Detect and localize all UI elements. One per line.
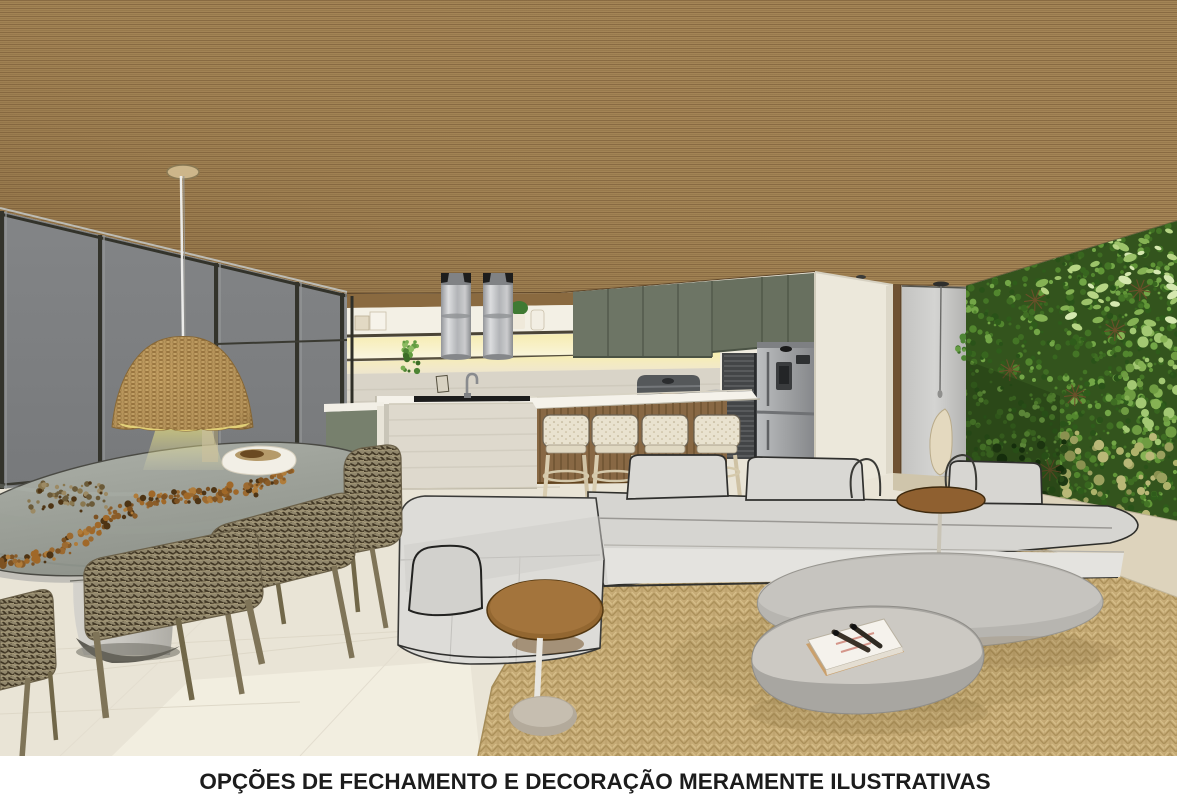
svg-text:OPÇÕES DE FECHAMENTO E DECORAÇ: OPÇÕES DE FECHAMENTO E DECORAÇÃO MERAMEN… [199,769,990,794]
